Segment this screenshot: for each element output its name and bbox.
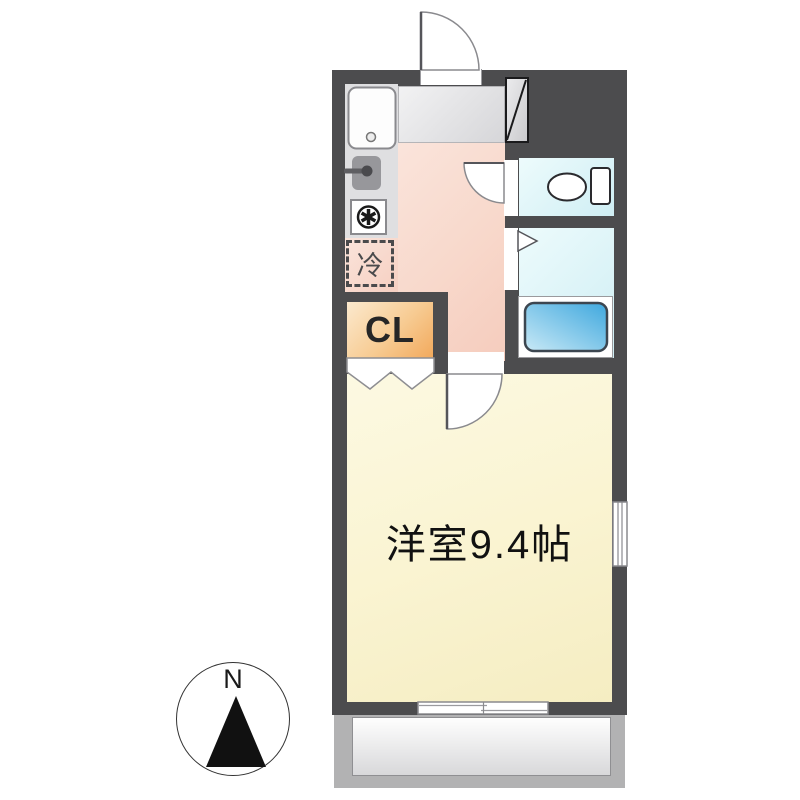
refrigerator-space: 冷: [346, 240, 394, 287]
entrance-door-swing-arc: [421, 12, 479, 70]
bathroom-door-opening: [504, 228, 518, 290]
bathtub-platform: [518, 296, 613, 358]
closet-label: CL: [365, 309, 415, 351]
kitchen-counter: [345, 84, 398, 238]
refrigerator-label: 冷: [357, 244, 384, 283]
entrance-door-opening: [420, 69, 482, 85]
wall-segment: [433, 302, 448, 374]
wall-segment: [345, 292, 448, 302]
floor-plan: CL 冷 N: [0, 0, 800, 800]
entry-area: [398, 86, 505, 143]
balcony-floor: [352, 717, 611, 776]
toilet-room: [519, 158, 614, 216]
toilet-door-opening: [504, 160, 518, 216]
main-room-door-opening: [447, 352, 504, 374]
compass-north-label: N: [176, 664, 290, 695]
room-size-label: 洋室9.4帖: [347, 512, 612, 570]
closet: CL: [347, 302, 433, 358]
